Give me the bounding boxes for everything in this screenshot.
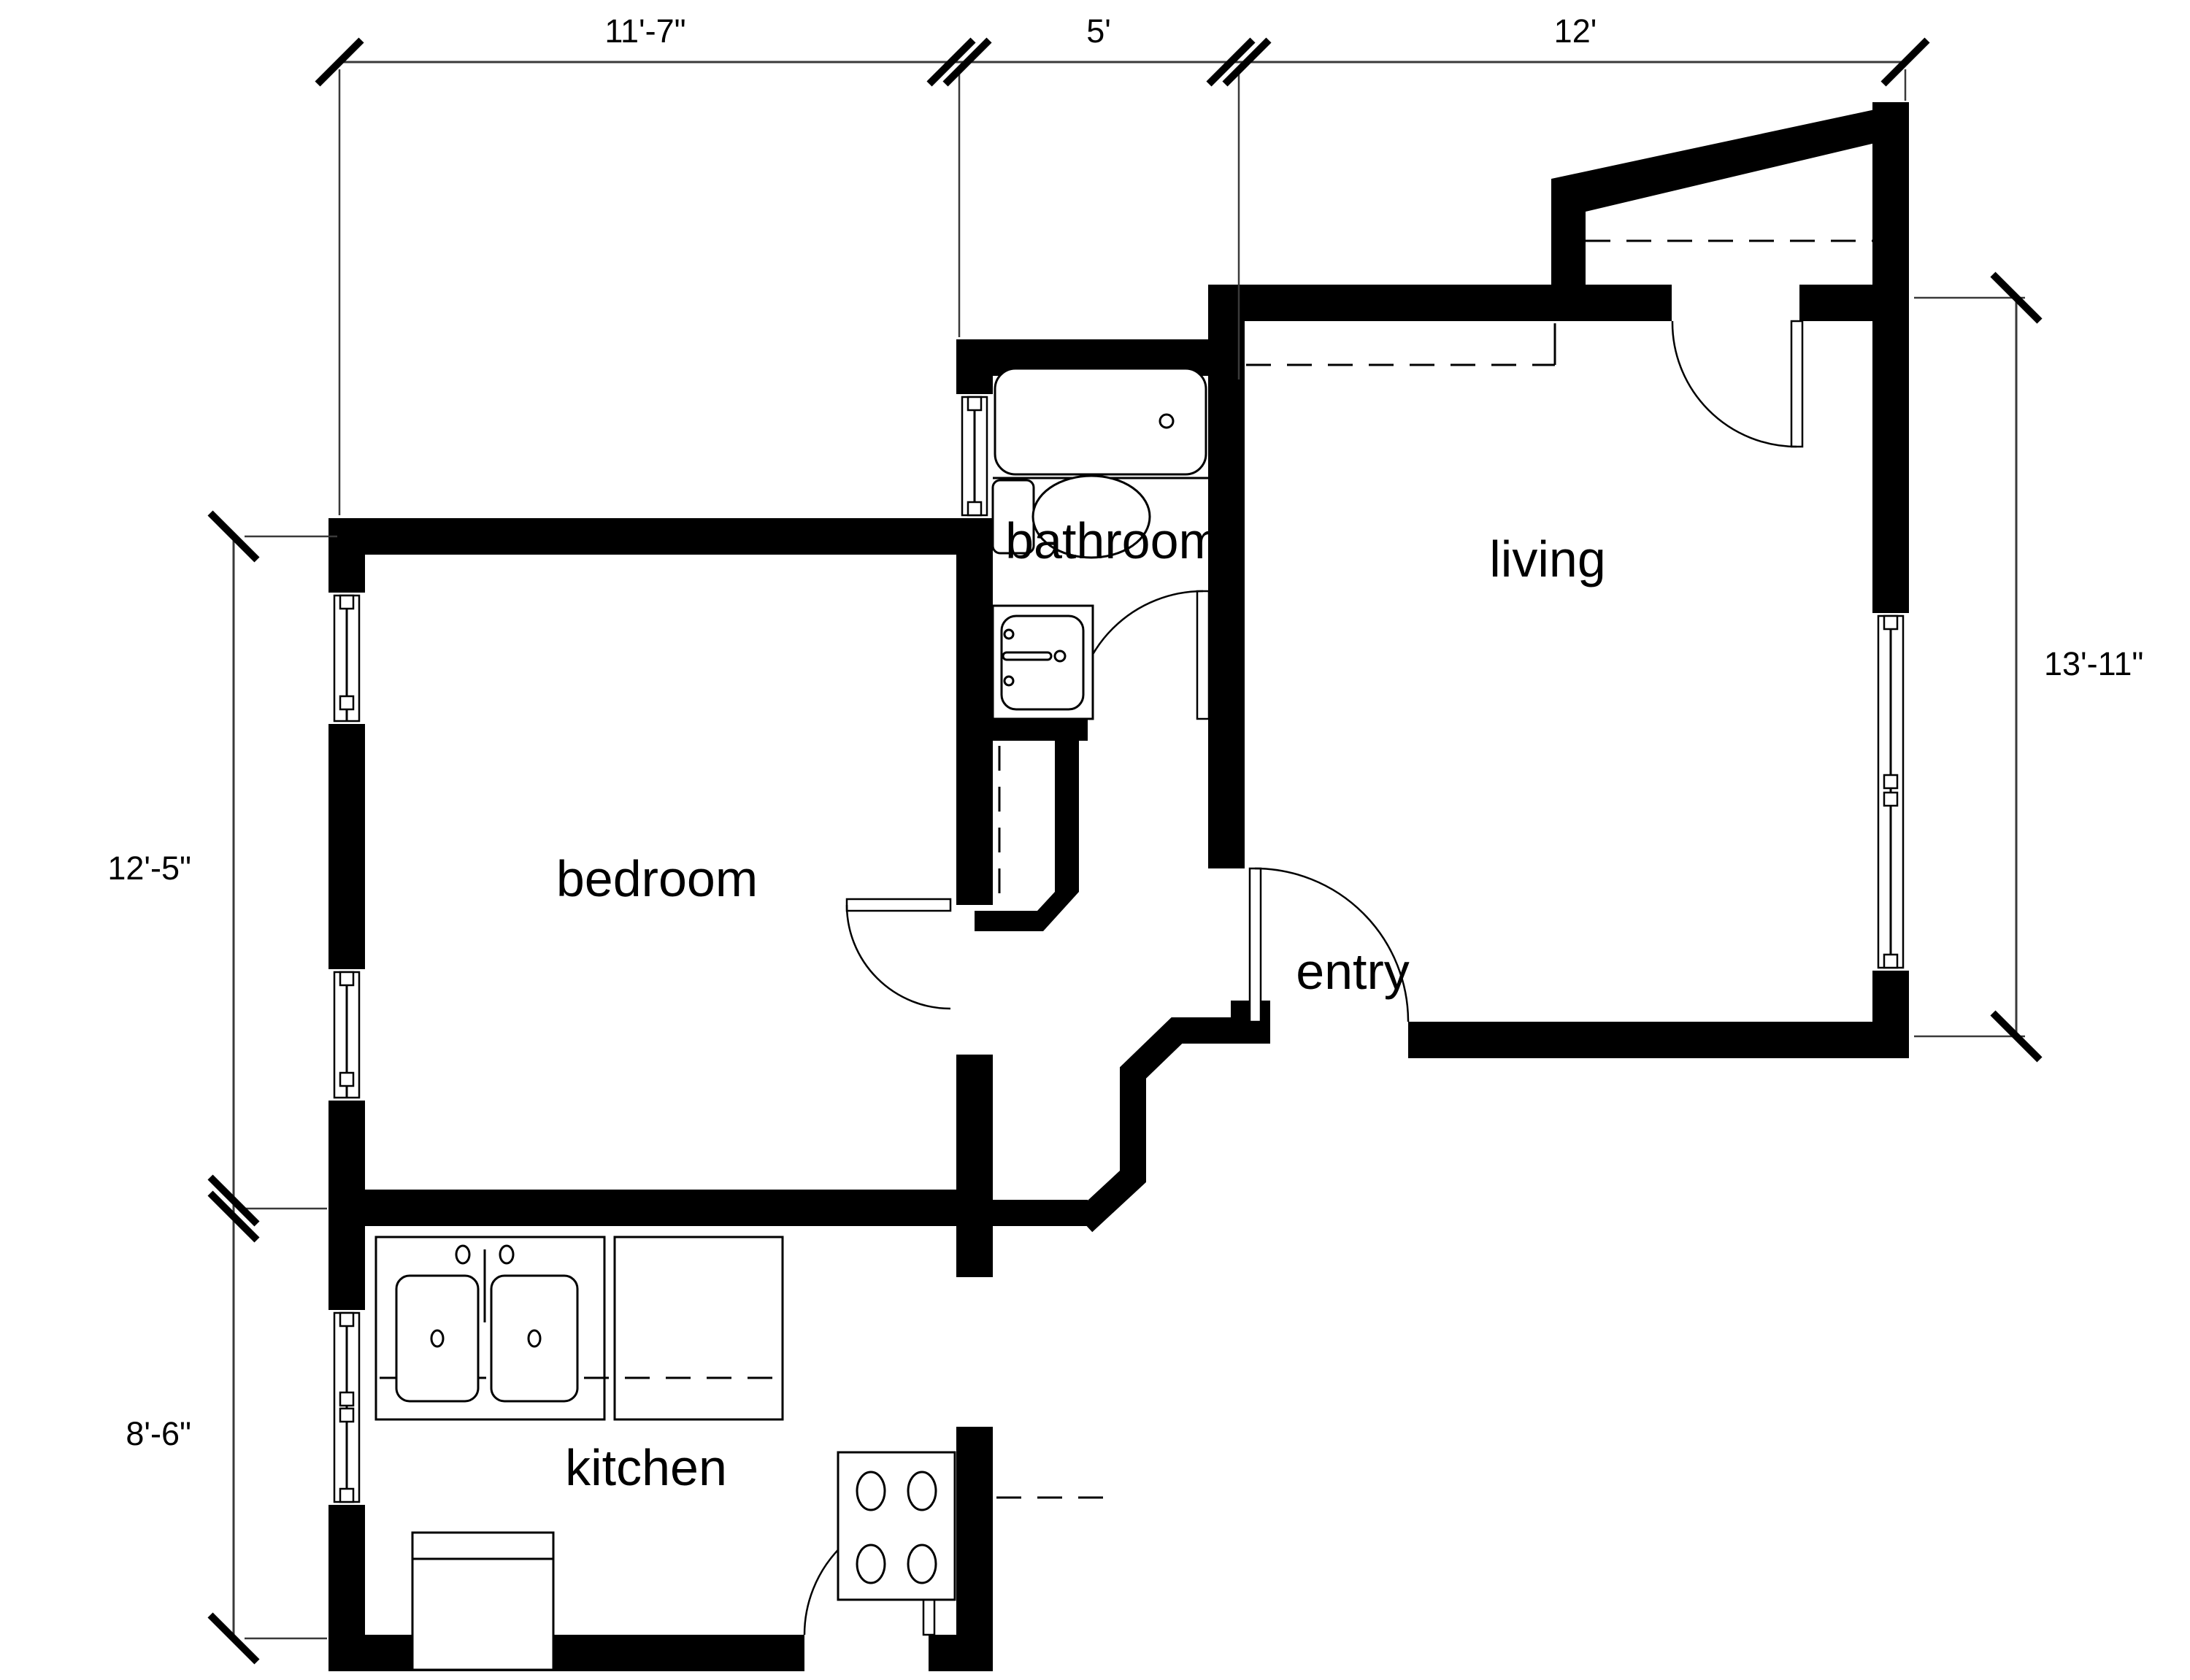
kitchen-right-wall-upper xyxy=(956,1226,993,1277)
kitchen-bottom-wall-left xyxy=(328,1635,804,1671)
dim-top-bedroom: 11'-7" xyxy=(604,12,685,50)
dim-top-living: 12' xyxy=(1554,12,1597,50)
hall-to-kitchen-wall xyxy=(1083,1128,1133,1222)
dim-left-bedroom: 12'-5" xyxy=(107,849,191,887)
living-top-wall-left xyxy=(1208,285,1672,321)
bathroom-bottom-wall xyxy=(956,719,1088,741)
bedroom-left-wall-seg2 xyxy=(328,724,365,969)
living-closet xyxy=(1246,323,1555,365)
bedroom-right-wall-upper xyxy=(956,518,993,905)
floor-plan-page: 11'-7" 5' 12' 12'-5" 8'-6" 13'-11" xyxy=(0,0,2190,1680)
deck-right-wall xyxy=(1872,102,1909,285)
hall-closet-right-wall xyxy=(1055,741,1079,892)
living-window xyxy=(1872,613,1909,971)
kitchen-window xyxy=(328,1310,365,1505)
bedroom-window-1 xyxy=(328,593,365,724)
living-right-wall-upper xyxy=(1872,285,1909,613)
label-bathroom: bathroom xyxy=(1005,512,1221,569)
kitchen-right-wall-lower xyxy=(956,1427,993,1671)
label-kitchen: kitchen xyxy=(565,1439,727,1496)
dim-top-bathroom: 5' xyxy=(1086,12,1111,50)
living-bottom-wall xyxy=(1408,1022,1909,1058)
label-living: living xyxy=(1489,531,1606,587)
kitchen-bottom-wall-right xyxy=(929,1635,993,1671)
dimension-left: 12'-5" 8'-6" xyxy=(107,513,337,1662)
bathroom-door xyxy=(1075,591,1209,719)
bedroom-right-wall-lower xyxy=(956,1055,993,1190)
hall-bottom-wall xyxy=(1133,1030,1270,1138)
stove xyxy=(838,1452,955,1600)
bedroom-bottom-wall xyxy=(328,1190,993,1226)
bathroom-sink xyxy=(993,606,1093,719)
floor-plan-drawing: 11'-7" 5' 12' 12'-5" 8'-6" 13'-11" xyxy=(0,0,2190,1680)
refrigerator xyxy=(412,1533,553,1670)
bedroom-window-2 xyxy=(328,969,365,1101)
kitchen-top-right-wall xyxy=(993,1200,1088,1226)
dimension-right: 13'-11" xyxy=(1914,274,2143,1060)
bedroom-left-wall-seg1 xyxy=(328,518,365,593)
deck-diagonal-wall xyxy=(1551,102,1909,212)
dim-right-living: 13'-11" xyxy=(2044,645,2143,682)
bathroom-left-wall-top xyxy=(956,339,993,394)
bathroom-window xyxy=(956,394,993,518)
label-entry: entry xyxy=(1296,943,1410,1000)
bathtub xyxy=(993,369,1208,478)
dim-left-kitchen: 8'-6" xyxy=(126,1415,191,1452)
bedroom-top-wall xyxy=(328,518,993,555)
bedroom-door xyxy=(847,899,950,1009)
label-bedroom: bedroom xyxy=(556,850,758,907)
deck-door xyxy=(1672,321,1802,447)
